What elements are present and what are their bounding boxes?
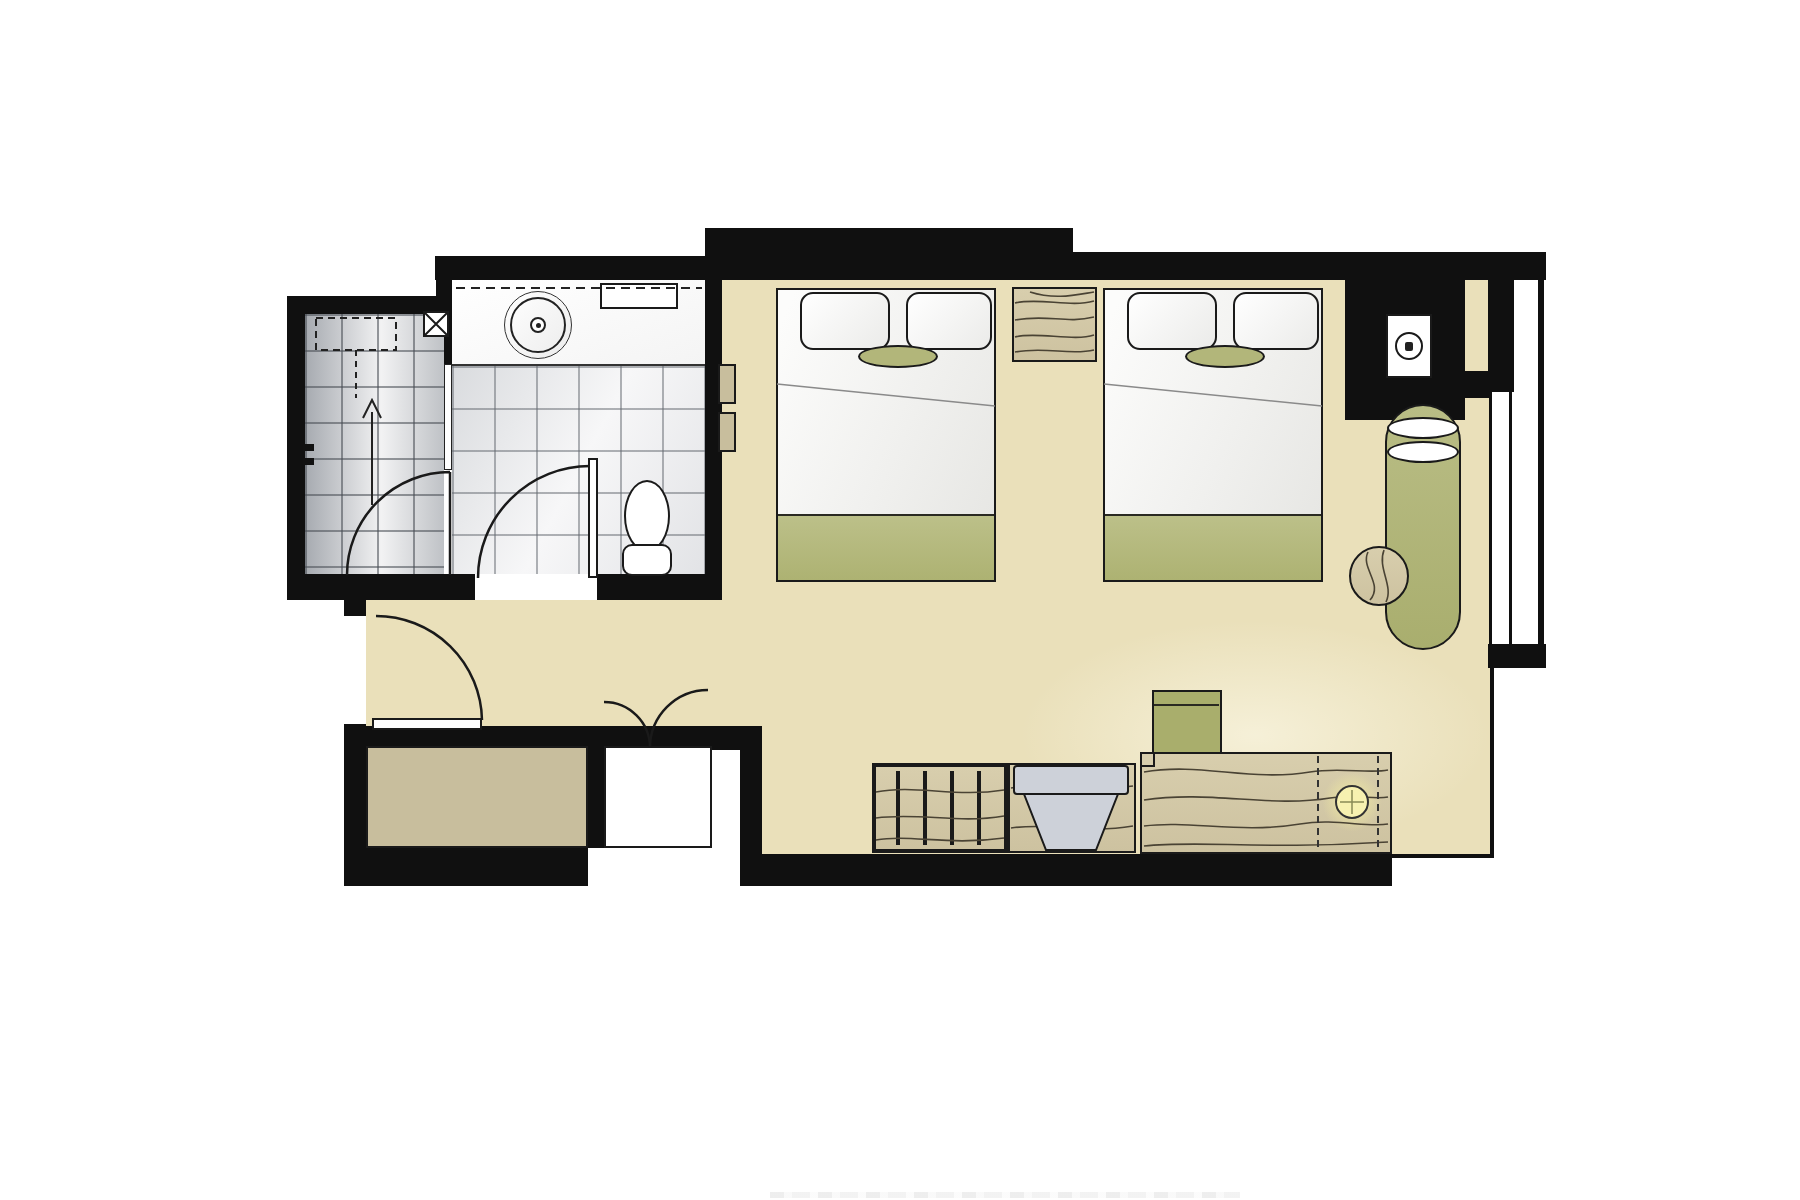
floor-plan-canvas [0, 0, 1800, 1200]
desk-stool [1152, 690, 1222, 754]
floor-edge-right [1490, 644, 1494, 858]
chaise-cushion-2 [1387, 441, 1459, 463]
bed-1-pillow-right [906, 292, 992, 350]
wall-panel-upper [718, 364, 736, 404]
bed-2-pillow-right [1233, 292, 1319, 350]
shower-floor [305, 314, 444, 574]
shaft-equipment-key [1405, 342, 1413, 351]
chaise-cushion-1 [1387, 417, 1459, 439]
luggage-strap-2 [923, 771, 927, 845]
bed-2-pillow-left [1127, 292, 1217, 350]
entry-door-leaf [372, 718, 482, 730]
desk-lamp-glow [1322, 772, 1382, 832]
window-glazing-line-outer [1509, 388, 1512, 648]
wall-shower-left [287, 296, 305, 578]
wall-entry-jamb-top [344, 596, 366, 616]
bathroom-floor [452, 366, 705, 574]
bed-2-foot-runner [1105, 514, 1321, 580]
bed-1-pillow-left [800, 292, 890, 350]
wall-bath-bottom-left [287, 574, 475, 600]
desk-stool-edge [1154, 704, 1219, 706]
floor-edge-bottom [1390, 854, 1494, 858]
wall-bedroom-bottom-band [740, 854, 1392, 886]
luggage-rack [872, 763, 1008, 853]
wall-shower-top [287, 296, 452, 314]
double-door-closet [604, 746, 712, 848]
wall-shaft-notch [1464, 371, 1490, 398]
wall-panel-lower [718, 412, 736, 452]
nightstand [1012, 287, 1097, 362]
wall-step-connector [740, 726, 762, 862]
desk-corner-notch [1140, 752, 1155, 767]
bed-2-cushion [1185, 345, 1265, 368]
washbasin-drain-dot [536, 323, 541, 328]
shower-glass-partition [444, 364, 452, 470]
wall-top-right-band [1073, 252, 1546, 280]
toilet-bowl [624, 480, 670, 552]
luggage-strap-1 [896, 771, 900, 845]
wall-bottom-left-band [344, 846, 588, 886]
towel-shelf [600, 283, 678, 309]
bed-1-cushion [858, 345, 938, 368]
closet-divider-wall [588, 746, 604, 848]
window-outer-face [1538, 260, 1544, 650]
wall-bedroom-top-thick [705, 228, 1073, 280]
entry-closet [366, 746, 588, 848]
wall-bath-bottom-right [597, 574, 722, 600]
bathroom-door-leaf [588, 458, 598, 578]
chair-console [1008, 763, 1136, 853]
window-pier [1488, 260, 1514, 392]
wall-bath-top [435, 256, 722, 280]
toilet-tank [622, 544, 672, 576]
side-table [1349, 546, 1409, 606]
cropped-caption-fragment [770, 1192, 1240, 1198]
bed-1-foot-runner [778, 514, 994, 580]
luggage-strap-3 [950, 771, 954, 845]
window-glazing-line-inner [1489, 388, 1492, 648]
luggage-strap-4 [977, 771, 981, 845]
